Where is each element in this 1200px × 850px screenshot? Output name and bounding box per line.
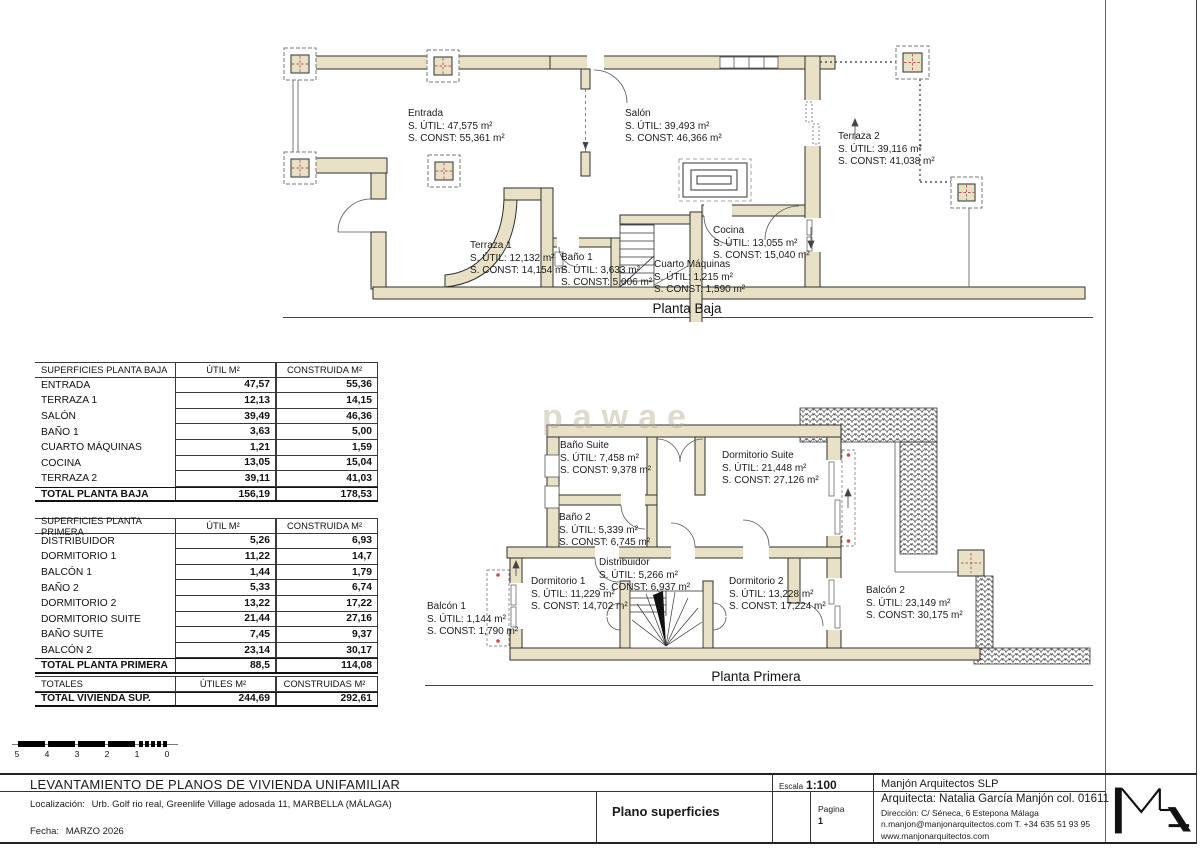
- table-cell: CONSTRUIDAS M²: [276, 677, 378, 691]
- table-cell: 41,03: [276, 471, 378, 487]
- room-label-line: S. CONST: 41,038 m²: [838, 156, 935, 169]
- table-cell: BALCÓN 1: [35, 565, 175, 581]
- room-label-line: Terraza 2: [838, 131, 935, 144]
- table-cell: ÚTIL M²: [175, 363, 276, 377]
- table-cell: 3,63: [175, 424, 276, 440]
- scale-dash: [151, 741, 155, 747]
- room-label-line: Baño 2: [559, 512, 650, 525]
- room-label-line: Balcón 1: [427, 601, 518, 614]
- firm-logo: [1113, 781, 1193, 839]
- titleblock-divider: [810, 791, 811, 842]
- room-label-terraza2: Terraza 2S. ÚTIL: 39,116 m²S. CONST: 41,…: [838, 131, 935, 169]
- table-cell: TOTAL PLANTA BAJA: [35, 488, 175, 501]
- page-number: 1: [818, 816, 823, 826]
- table-cell: 1,59: [276, 440, 378, 456]
- scale-segment: [18, 741, 45, 747]
- firm-name: Manjón Arquitectos SLP: [881, 778, 998, 790]
- scale-dash: [157, 741, 161, 747]
- room-label-line: S. ÚTIL: 39,493 m²: [625, 121, 722, 134]
- drawing-title: LEVANTAMIENTO DE PLANOS DE VIVIENDA UNIF…: [30, 777, 400, 792]
- table-planta_baja: SUPERFICIES PLANTA BAJAÚTIL M²CONSTRUIDA…: [35, 362, 378, 502]
- stairs-planta-primera: [630, 591, 703, 648]
- table-row: SUPERFICIES PLANTA BAJAÚTIL M²CONSTRUIDA…: [35, 362, 378, 378]
- table-cell: SUPERFICIES PLANTA PRIMERA: [35, 519, 175, 533]
- table-cell: 47,57: [175, 378, 276, 394]
- scale-number: 1: [132, 749, 142, 759]
- caption-planta-primera: Planta Primera: [696, 669, 816, 684]
- table-cell: 39,11: [175, 471, 276, 487]
- room-label-line: Baño 1: [561, 252, 652, 265]
- table-cell: 11,22: [175, 549, 276, 565]
- table-cell: BAÑO 2: [35, 580, 175, 596]
- scale-label: Escala: [779, 782, 803, 791]
- room-label-line: Entrada: [408, 108, 505, 121]
- table-row: BAÑO SUITE7,459,37: [35, 627, 378, 643]
- room-label-line: S. ÚTIL: 3,633 m²: [561, 265, 652, 278]
- table-row: SALÓN39,4946,36: [35, 409, 378, 425]
- table-cell: 5,26: [175, 534, 276, 550]
- room-label-line: S. CONST: 30,175 m²: [866, 610, 963, 623]
- room-label-terraza1: Terraza 1S. ÚTIL: 12,132 m²S. CONST: 14,…: [470, 240, 567, 278]
- table-cell: 39,49: [175, 409, 276, 425]
- table-row: ENTRADA47,5755,36: [35, 378, 378, 394]
- table-row: TOTAL PLANTA PRIMERA88,5114,08: [35, 658, 378, 674]
- room-label-line: S. CONST: 55,361 m²: [408, 133, 505, 146]
- table-cell: 1,44: [175, 565, 276, 581]
- roof-hatch: [800, 408, 1090, 664]
- table-cell: 6,93: [276, 534, 378, 550]
- table-cell: DORMITORIO 1: [35, 549, 175, 565]
- room-label-cocina: CocinaS. ÚTIL: 13,055 m²S. CONST: 15,040…: [713, 225, 810, 263]
- table-cell: 55,36: [276, 378, 378, 394]
- table-cell: CONSTRUIDA M²: [276, 363, 378, 377]
- scale-dash: [145, 741, 149, 747]
- table-row: TOTALESÚTILES M²CONSTRUIDAS M²: [35, 676, 378, 692]
- room-label-line: S. CONST: 46,366 m²: [625, 133, 722, 146]
- table-row: COCINA13,0515,04: [35, 456, 378, 472]
- table-cell: 1,79: [276, 565, 378, 581]
- room-label-line: Terraza 1: [470, 240, 567, 253]
- room-label-line: S. CONST: 1,790 m²: [427, 626, 518, 639]
- table-cell: 9,37: [276, 627, 378, 643]
- room-label-line: S. ÚTIL: 1,144 m²: [427, 614, 518, 627]
- table-cell: 15,04: [276, 456, 378, 472]
- table-cell: TOTAL PLANTA PRIMERA: [35, 659, 175, 672]
- room-label-entrada: EntradaS. ÚTIL: 47,575 m²S. CONST: 55,36…: [408, 108, 505, 146]
- room-label-line: S. ÚTIL: 39,116 m²: [838, 144, 935, 157]
- room-label-line: S. CONST: 27,126 m²: [722, 475, 819, 488]
- room-label-line: S. CONST: 6,745 m²: [559, 537, 650, 550]
- table-cell: 14,7: [276, 549, 378, 565]
- scale-dash: [163, 741, 167, 747]
- scale-segment: [48, 741, 75, 747]
- room-label-line: S. ÚTIL: 1,215 m²: [654, 272, 745, 285]
- room-label-line: S. CONST: 14,702 m²: [531, 601, 628, 614]
- room-label-balcon2: Balcón 2S. ÚTIL: 23,149 m²S. CONST: 30,1…: [866, 585, 963, 623]
- scale-number: 4: [42, 749, 52, 759]
- room-label-line: S. ÚTIL: 12,132 m²: [470, 253, 567, 266]
- location-label: Localización:: [30, 799, 85, 810]
- inner-border-line: [1105, 0, 1106, 843]
- table-cell: TOTALES: [35, 677, 175, 691]
- titleblock-top-border: [0, 773, 1197, 775]
- table-cell: 114,08: [276, 659, 378, 672]
- table-cell: DISTRIBUIDOR: [35, 534, 175, 550]
- page-label: Pagina: [818, 804, 844, 814]
- table-cell: COCINA: [35, 456, 175, 472]
- table-cell: TOTAL VIVIENDA SUP.: [35, 693, 175, 706]
- firm-website: www.manjonarquitectos.com: [881, 831, 989, 841]
- table-row: TERRAZA 112,1314,15: [35, 393, 378, 409]
- table-row: DORMITORIO 111,2214,7: [35, 549, 378, 565]
- table-cell: SALÓN: [35, 409, 175, 425]
- table-row: DORMITORIO 213,2217,22: [35, 596, 378, 612]
- room-label-salon: SalónS. ÚTIL: 39,493 m²S. CONST: 46,366 …: [625, 108, 722, 146]
- table-cell: 6,74: [276, 580, 378, 596]
- scale-number: 3: [72, 749, 82, 759]
- room-label-line: S. CONST: 17,224 m²: [729, 601, 826, 614]
- room-label-bano1: Baño 1S. ÚTIL: 3,633 m²S. CONST: 5,006 m…: [561, 252, 652, 290]
- firm-contact: n.manjon@manjonarquitectos.com T. +34 63…: [881, 819, 1090, 829]
- titleblock-divider: [596, 791, 597, 842]
- scale-number: 2: [102, 749, 112, 759]
- table-cell: CONSTRUIDA M²: [276, 519, 378, 533]
- table-row: BALCÓN 223,1430,17: [35, 643, 378, 659]
- room-label-dormitorio_suite: Dormitorio SuiteS. ÚTIL: 21,448 m²S. CON…: [722, 450, 819, 488]
- outer-border-line: [1196, 0, 1197, 843]
- passage-symbols: [581, 69, 590, 176]
- table-cell: 1,21: [175, 440, 276, 456]
- room-label-balcon1: Balcón 1S. ÚTIL: 1,144 m²S. CONST: 1,790…: [427, 601, 518, 639]
- scale-dash: [139, 741, 143, 747]
- table-cell: 21,44: [175, 612, 276, 628]
- table-cell: 7,45: [175, 627, 276, 643]
- table-cell: 178,53: [276, 488, 378, 501]
- table-cell: ENTRADA: [35, 378, 175, 394]
- room-label-line: S. ÚTIL: 21,448 m²: [722, 463, 819, 476]
- table-row: BAÑO 13,635,00: [35, 424, 378, 440]
- location-line: Localización: Urb. Golf rio real, Greenl…: [30, 799, 392, 810]
- room-label-line: Distribuidor: [599, 557, 690, 570]
- watermark: pawae: [542, 398, 696, 437]
- table-cell: 13,22: [175, 596, 276, 612]
- planta-primera-drawing: [425, 398, 1093, 690]
- table-cell: TERRAZA 2: [35, 471, 175, 487]
- room-label-line: Baño Suite: [560, 440, 651, 453]
- room-label-dormitorio1: Dormitorio 1S. ÚTIL: 11,229 m²S. CONST: …: [531, 576, 628, 614]
- table-cell: 23,14: [175, 643, 276, 659]
- caption-planta-baja: Planta Baja: [627, 301, 747, 316]
- architect-name: Arquitecta: Natalia García Manjón col. 0…: [881, 793, 1109, 805]
- room-label-line: Dormitorio 1: [531, 576, 628, 589]
- room-label-line: S. ÚTIL: 47,575 m²: [408, 121, 505, 134]
- location-value: Urb. Golf rio real, Greenlife Village ad…: [92, 799, 392, 810]
- table-cell: CUARTO MÁQUINAS: [35, 440, 175, 456]
- room-label-line: Dormitorio Suite: [722, 450, 819, 463]
- table-cell: SUPERFICIES PLANTA BAJA: [35, 363, 175, 377]
- date-label: Fecha:: [30, 826, 59, 837]
- date-value: MARZO 2026: [66, 826, 124, 837]
- table-cell: 88,5: [175, 659, 276, 672]
- table-cell: 13,05: [175, 456, 276, 472]
- table-row: SUPERFICIES PLANTA PRIMERAÚTIL M²CONSTRU…: [35, 518, 378, 534]
- scale-bar: 543210: [12, 736, 187, 762]
- kitchen-counter: [679, 159, 751, 201]
- table-row: BAÑO 25,336,74: [35, 580, 378, 596]
- room-label-line: S. ÚTIL: 5,339 m²: [559, 525, 650, 538]
- table-cell: TERRAZA 1: [35, 393, 175, 409]
- plan-sheet: pawae Planta Baja Planta Primera Entrada…: [0, 0, 1200, 850]
- room-label-line: Salón: [625, 108, 722, 121]
- table-row: DISTRIBUIDOR5,266,93: [35, 534, 378, 550]
- room-label-line: S. CONST: 1,590 m²: [654, 284, 745, 297]
- table-cell: 244,69: [175, 693, 276, 706]
- table-planta_primera: SUPERFICIES PLANTA PRIMERAÚTIL M²CONSTRU…: [35, 518, 378, 674]
- scale-value: 1:100: [806, 778, 837, 792]
- table-cell: 17,22: [276, 596, 378, 612]
- sheet-name: Plano superficies: [612, 804, 720, 819]
- titleblock-divider: [873, 775, 874, 842]
- scale-cell: Escala 1:100: [779, 778, 837, 792]
- titleblock-bottom-border: [0, 842, 1197, 844]
- scale-segment: [78, 741, 105, 747]
- table-row: DORMITORIO SUITE21,4427,16: [35, 612, 378, 628]
- table-cell: 292,61: [276, 693, 378, 706]
- table-row: TOTAL PLANTA BAJA156,19178,53: [35, 487, 378, 503]
- table-cell: DORMITORIO SUITE: [35, 612, 175, 628]
- scale-number: 5: [12, 749, 22, 759]
- scale-segment: [108, 741, 135, 747]
- date-line: Fecha: MARZO 2026: [30, 826, 124, 837]
- table-cell: 46,36: [276, 409, 378, 425]
- table-totales: TOTALESÚTILES M²CONSTRUIDAS M²TOTAL VIVI…: [35, 676, 378, 707]
- room-label-bano2: Baño 2S. ÚTIL: 5,339 m²S. CONST: 6,745 m…: [559, 512, 650, 550]
- room-label-line: S. ÚTIL: 23,149 m²: [866, 598, 963, 611]
- table-cell: ÚTILES M²: [175, 677, 276, 691]
- room-label-line: S. CONST: 9,378 m²: [560, 465, 651, 478]
- room-label-line: S. ÚTIL: 13,055 m²: [713, 238, 810, 251]
- table-row: CUARTO MÁQUINAS1,211,59: [35, 440, 378, 456]
- room-label-line: S. CONST: 14,154 m²: [470, 265, 567, 278]
- table-cell: BALCÓN 2: [35, 643, 175, 659]
- table-row: BALCÓN 11,441,79: [35, 565, 378, 581]
- table-cell: 5,33: [175, 580, 276, 596]
- table-cell: 27,16: [276, 612, 378, 628]
- table-cell: 5,00: [276, 424, 378, 440]
- table-row: TOTAL VIVIENDA SUP.244,69292,61: [35, 692, 378, 708]
- room-label-line: S. ÚTIL: 11,229 m²: [531, 589, 628, 602]
- table-row: TERRAZA 239,1141,03: [35, 471, 378, 487]
- table-cell: ÚTIL M²: [175, 519, 276, 533]
- room-label-line: S. ÚTIL: 7,458 m²: [560, 453, 651, 466]
- table-cell: DORMITORIO 2: [35, 596, 175, 612]
- firm-address: Dirección: C/ Séneca, 6 Estepona Málaga: [881, 808, 1039, 818]
- table-cell: BAÑO SUITE: [35, 627, 175, 643]
- room-label-bano_suite: Baño SuiteS. ÚTIL: 7,458 m²S. CONST: 9,3…: [560, 440, 651, 478]
- room-label-cuarto_maquinas: Cuarto MáquinasS. ÚTIL: 1,215 m²S. CONST…: [654, 259, 745, 297]
- table-cell: 30,17: [276, 643, 378, 659]
- table-cell: 156,19: [175, 488, 276, 501]
- room-label-line: S. CONST: 5,006 m²: [561, 277, 652, 290]
- titleblock-divider: [772, 775, 773, 842]
- room-label-line: Dormitorio 2: [729, 576, 826, 589]
- room-label-line: S. CONST: 15,040 m²: [713, 250, 810, 263]
- room-label-line: Balcón 2: [866, 585, 963, 598]
- room-label-line: Cocina: [713, 225, 810, 238]
- scale-number: 0: [162, 749, 172, 759]
- table-cell: 12,13: [175, 393, 276, 409]
- table-cell: BAÑO 1: [35, 424, 175, 440]
- table-cell: 14,15: [276, 393, 378, 409]
- room-label-dormitorio2: Dormitorio 2S. ÚTIL: 13,228 m²S. CONST: …: [729, 576, 826, 614]
- room-label-line: S. ÚTIL: 13,228 m²: [729, 589, 826, 602]
